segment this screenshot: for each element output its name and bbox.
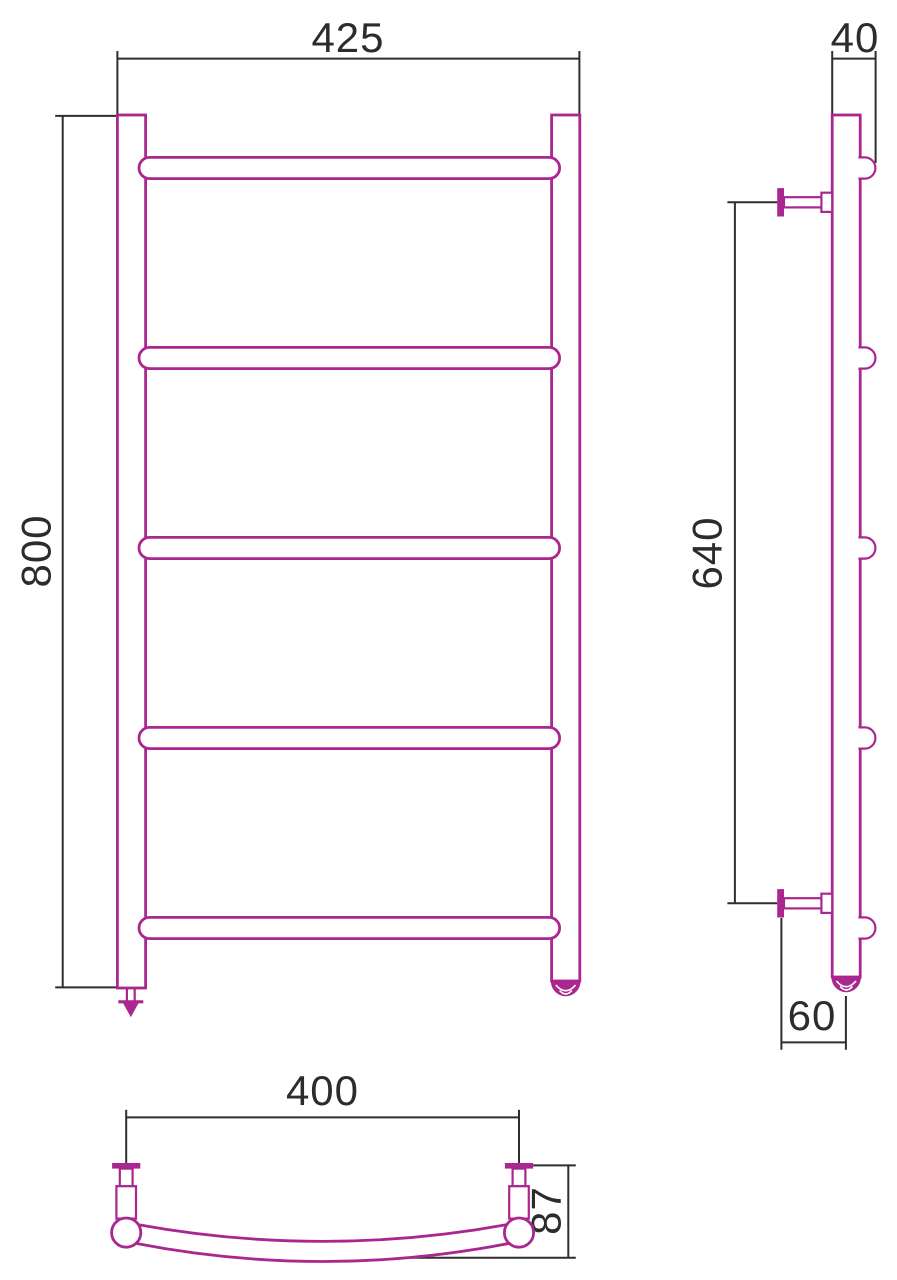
- inlet-arrow: [118, 989, 143, 1017]
- curved-tube: [136, 1225, 509, 1262]
- bracket-collar: [509, 1186, 529, 1218]
- wall-offset-dim-label: 60: [788, 992, 837, 1039]
- top-view: [112, 1163, 534, 1262]
- rung-2: [139, 347, 560, 368]
- drawing-svg: 425 800: [0, 0, 897, 1280]
- plan-bracket-left: [112, 1163, 140, 1219]
- side-view: [777, 115, 875, 992]
- bracket-collar: [821, 193, 832, 212]
- bracket-neck: [120, 1169, 133, 1187]
- side-depth-dim-label: 40: [831, 14, 880, 61]
- rung-1: [139, 157, 560, 178]
- front-view: [117, 115, 579, 1017]
- bracket-collar: [116, 1186, 136, 1218]
- rung-5: [139, 917, 560, 938]
- bracket-neck: [513, 1169, 526, 1187]
- rung-stub-2: [858, 347, 875, 368]
- bracket-stem: [784, 898, 822, 908]
- rung-stub-5: [858, 917, 875, 938]
- technical-drawing-canvas: 425 800: [0, 0, 897, 1280]
- rung-stub-3: [858, 537, 875, 558]
- top-span-dim-label: 400: [286, 1067, 359, 1114]
- right-post-section: [504, 1218, 533, 1247]
- rung-4: [139, 727, 560, 748]
- rung-3: [139, 537, 560, 558]
- bracket-wall-flange: [112, 1163, 140, 1169]
- front-width-dim-label: 425: [311, 14, 384, 61]
- bracket-wall-flange: [777, 889, 784, 917]
- bracket-wall-flange: [777, 188, 784, 216]
- front-height-dim-label: 800: [13, 514, 60, 587]
- wall-bracket-top: [777, 188, 832, 216]
- inlet-arrow-head: [118, 1000, 143, 1017]
- rung-stub-1: [858, 157, 875, 178]
- bracket-collar: [821, 894, 832, 913]
- left-post-section: [112, 1218, 141, 1247]
- rung-stub-4: [858, 727, 875, 748]
- wall-bracket-bottom: [777, 889, 832, 917]
- bracket-stem: [784, 197, 822, 207]
- bracket-spacing-dim-label: 640: [684, 516, 731, 589]
- side-tube: [832, 115, 860, 977]
- plan-bracket-right: [505, 1163, 533, 1219]
- bracket-wall-flange: [505, 1163, 533, 1169]
